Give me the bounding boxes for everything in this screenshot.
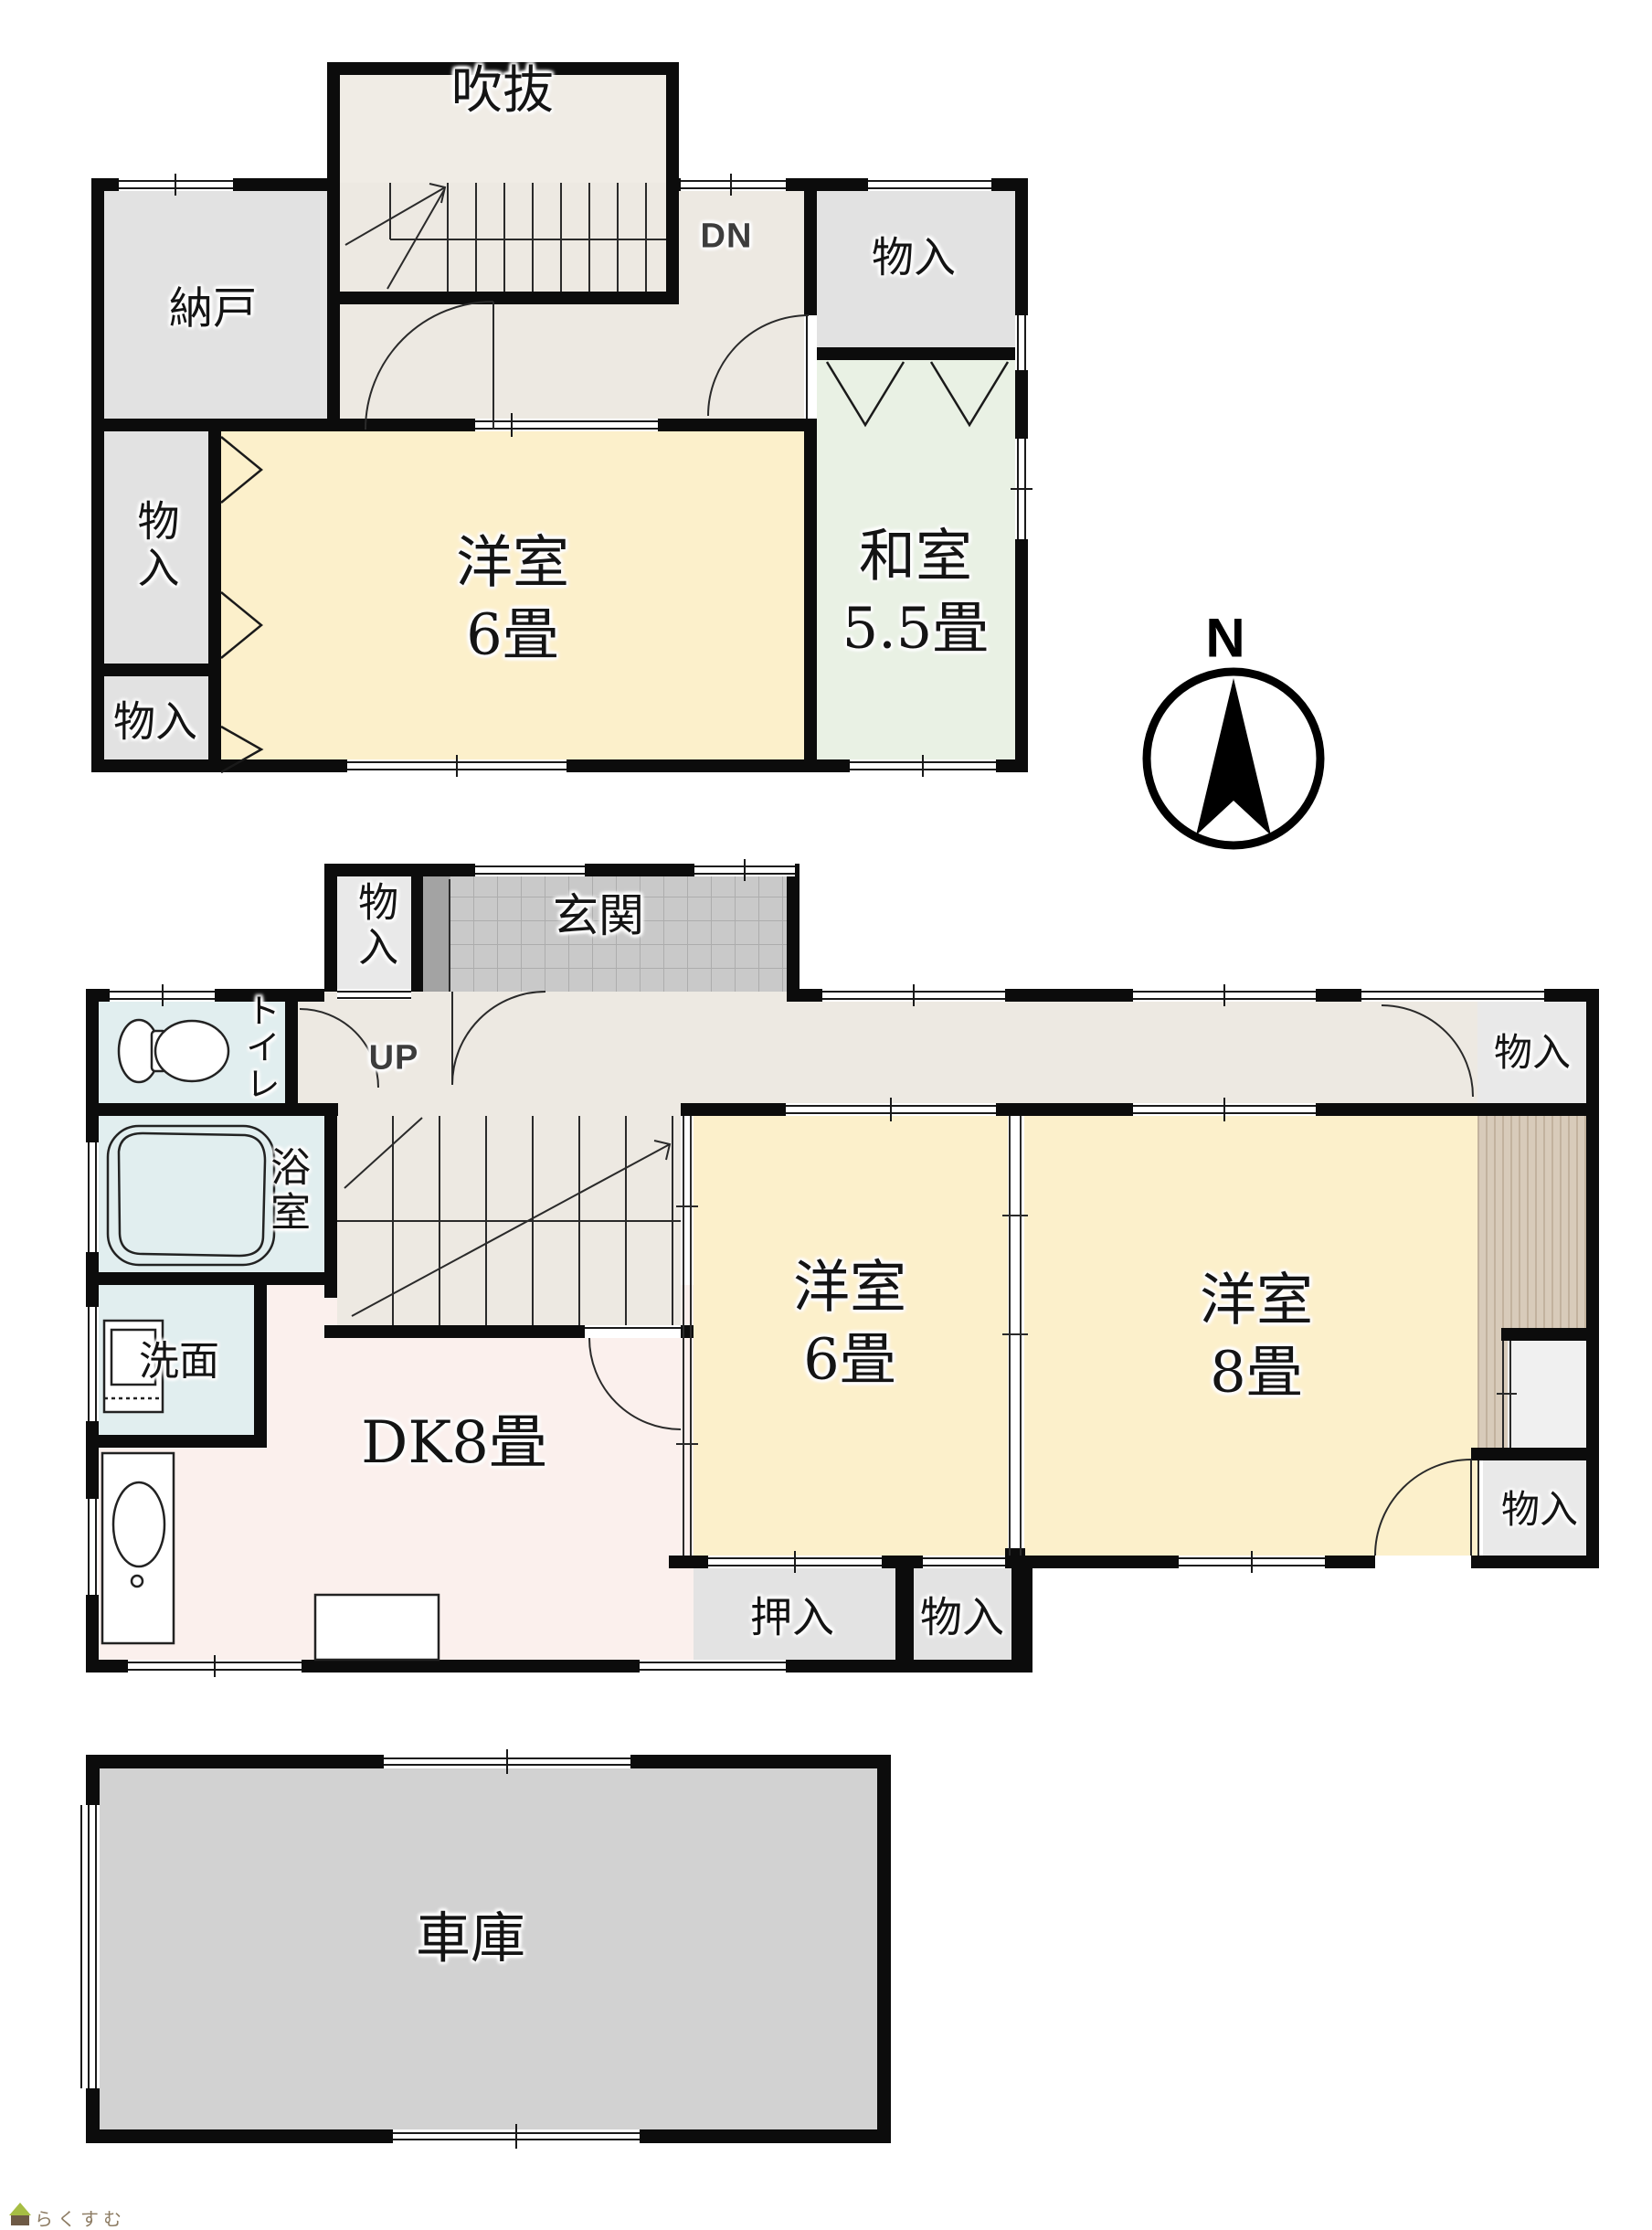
- label-western-6-2f: 洋室 6畳: [456, 526, 569, 672]
- label-nando: 納戸: [169, 281, 257, 336]
- floorplan-page: 吹抜 DN 納戸 物入 物入 洋室 6畳 和室 5.5畳 物入 N 物入 玄関 …: [0, 0, 1652, 2230]
- label-closet-south: 物入: [920, 1591, 1004, 1645]
- label-up: UP: [369, 1036, 419, 1081]
- watermark-house-icon: [9, 2203, 31, 2225]
- label-void: 吹抜: [451, 58, 554, 124]
- label-garage: 車庫: [416, 1905, 525, 1975]
- label-closet-ne: 物入: [1494, 1028, 1571, 1078]
- label-bath: 浴室: [260, 1146, 312, 1236]
- label-closet-se: 物入: [1501, 1485, 1578, 1534]
- label-western-6-2f-size: 6畳: [456, 599, 569, 671]
- label-senmen: 洗面: [139, 1336, 219, 1387]
- doors-2f: [365, 302, 809, 430]
- stairs-2f-lines: [345, 183, 666, 292]
- label-japanese-room: 和室 5.5畳: [842, 520, 990, 665]
- bathtub-icon: [108, 1126, 274, 1265]
- toilet-icon: [119, 1020, 228, 1082]
- label-western-6-2f-name: 洋室: [456, 526, 569, 599]
- label-genkan: 玄関: [553, 887, 644, 945]
- label-oshiire: 押入: [750, 1591, 834, 1645]
- label-closet-entry: 物入: [348, 881, 399, 971]
- partitions-1f: [450, 879, 1517, 1556]
- label-western-8: 洋室 8畳: [1200, 1264, 1313, 1409]
- label-dk: DK8畳: [361, 1407, 547, 1481]
- label-western-6-1f-name: 洋室: [793, 1251, 906, 1323]
- label-western-8-size: 8畳: [1200, 1336, 1313, 1408]
- label-japanese-room-size: 5.5畳: [842, 592, 990, 664]
- label-closet-2f-mid: 物入: [129, 499, 183, 592]
- kitchen-sink-icon: [102, 1453, 439, 1660]
- label-closet-2f-topright: 物入: [872, 231, 956, 285]
- label-western-6-1f: 洋室 6畳: [793, 1251, 906, 1396]
- label-toilet: トイレ: [238, 993, 282, 1102]
- watermark-brand: らくすむ: [35, 2204, 126, 2230]
- stairs-1f-lines: [337, 1116, 681, 1325]
- garage-openings: [81, 1749, 640, 2149]
- label-japanese-room-name: 和室: [842, 520, 990, 592]
- label-western-8-name: 洋室: [1200, 1264, 1313, 1336]
- compass-icon: [1147, 672, 1320, 845]
- label-dn: DN: [701, 215, 753, 260]
- label-closet-2f-bottom: 物入: [113, 696, 197, 749]
- label-compass-north: N: [1205, 604, 1244, 674]
- label-western-6-1f-size: 6畳: [793, 1323, 906, 1396]
